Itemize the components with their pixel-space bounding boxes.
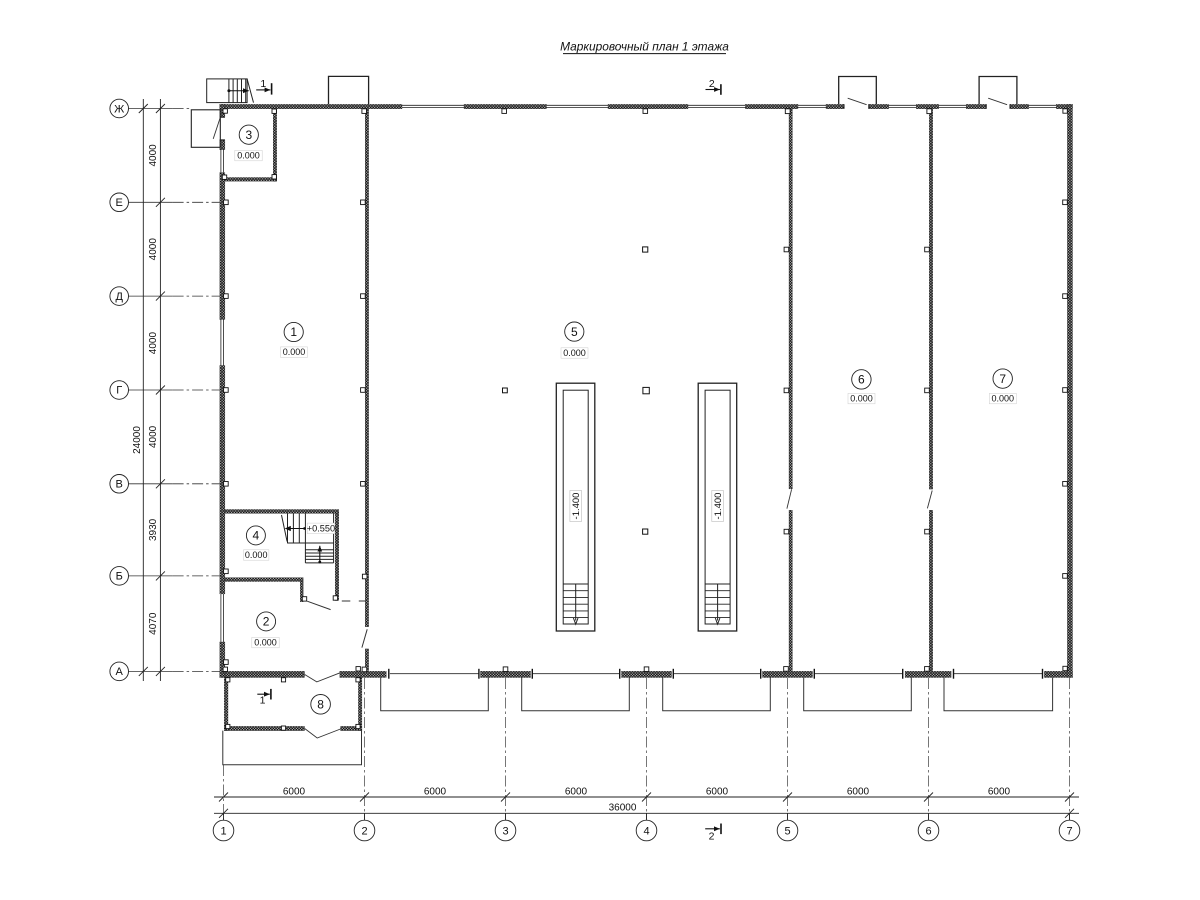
svg-text:2: 2: [709, 78, 715, 90]
svg-text:-1.400: -1.400: [571, 493, 582, 520]
svg-text:Д: Д: [115, 291, 123, 303]
svg-text:6000: 6000: [706, 786, 729, 797]
svg-text:+0.550: +0.550: [307, 524, 335, 534]
svg-text:1: 1: [220, 825, 226, 837]
svg-text:4000: 4000: [148, 144, 159, 167]
svg-text:Е: Е: [116, 197, 123, 209]
svg-text:0.000: 0.000: [245, 550, 268, 560]
svg-text:0.000: 0.000: [850, 394, 873, 404]
svg-text:6000: 6000: [283, 786, 306, 797]
svg-text:6000: 6000: [424, 786, 447, 797]
svg-text:-1.400: -1.400: [713, 493, 724, 520]
svg-text:5: 5: [784, 825, 790, 837]
svg-text:0.000: 0.000: [283, 347, 306, 357]
svg-text:6: 6: [858, 373, 865, 387]
svg-text:Б: Б: [116, 571, 123, 583]
svg-text:4000: 4000: [148, 332, 159, 355]
svg-text:Ж: Ж: [114, 103, 124, 115]
svg-text:0.000: 0.000: [237, 151, 260, 161]
svg-text:4000: 4000: [148, 238, 159, 261]
svg-text:1: 1: [290, 325, 297, 339]
svg-text:5: 5: [571, 325, 578, 339]
svg-text:24000: 24000: [132, 426, 143, 454]
svg-text:6000: 6000: [988, 786, 1011, 797]
svg-text:2: 2: [361, 825, 367, 837]
svg-text:4070: 4070: [148, 612, 159, 635]
svg-text:3: 3: [502, 825, 508, 837]
svg-text:0.000: 0.000: [254, 638, 277, 648]
svg-text:4000: 4000: [148, 425, 159, 448]
svg-text:3930: 3930: [148, 518, 159, 541]
svg-text:А: А: [116, 666, 124, 678]
svg-text:6000: 6000: [847, 786, 870, 797]
svg-text:36000: 36000: [609, 803, 637, 814]
svg-text:7: 7: [999, 372, 1006, 386]
svg-text:6000: 6000: [565, 786, 588, 797]
svg-text:3: 3: [245, 128, 252, 142]
svg-text:8: 8: [317, 698, 324, 712]
svg-text:4: 4: [253, 529, 260, 543]
svg-text:4: 4: [643, 825, 649, 837]
svg-text:7: 7: [1066, 825, 1072, 837]
svg-text:0.000: 0.000: [992, 394, 1015, 404]
svg-text:2: 2: [263, 615, 270, 629]
svg-text:В: В: [116, 479, 123, 491]
svg-text:1: 1: [260, 78, 266, 90]
svg-text:1: 1: [260, 694, 266, 706]
svg-text:Маркировочный план 1 этажа: Маркировочный план 1 этажа: [560, 40, 729, 54]
svg-text:6: 6: [925, 825, 931, 837]
svg-text:2: 2: [709, 830, 715, 842]
svg-text:Г: Г: [116, 385, 122, 397]
svg-text:0.000: 0.000: [563, 348, 586, 358]
